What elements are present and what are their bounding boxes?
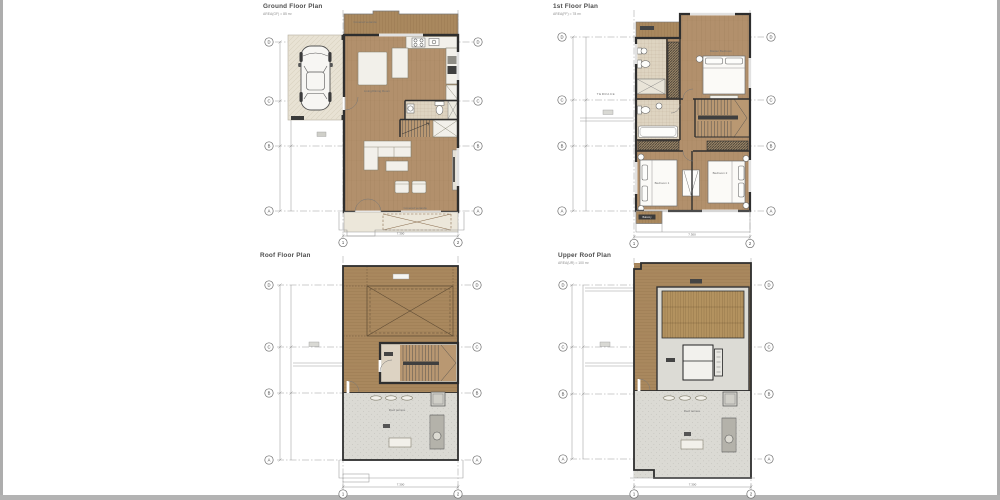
terrace-edge-lines bbox=[293, 363, 343, 366]
coffee-table bbox=[386, 161, 408, 171]
label-chip bbox=[393, 274, 409, 279]
level-chip bbox=[600, 342, 610, 347]
grid-bubble: D bbox=[473, 281, 481, 289]
grid-bubble: A bbox=[474, 207, 482, 215]
grid-bubble: B bbox=[559, 390, 567, 398]
svg-text:D: D bbox=[267, 283, 270, 288]
appliance bbox=[448, 56, 457, 64]
door-gap bbox=[638, 379, 641, 391]
svg-text:C: C bbox=[267, 99, 270, 104]
svg-text:Covered veranda: Covered veranda bbox=[403, 206, 426, 210]
wc bbox=[405, 101, 458, 120]
svg-text:D: D bbox=[767, 283, 770, 288]
grid-bubble: D bbox=[265, 38, 273, 46]
building: Roof terrace bbox=[339, 266, 463, 482]
building: Covered veranda bbox=[339, 11, 464, 236]
closet bbox=[638, 141, 679, 150]
stool bbox=[664, 396, 675, 400]
grid-bubble: A bbox=[558, 207, 566, 215]
svg-text:Bedroom 1: Bedroom 1 bbox=[655, 181, 670, 185]
desk-chair bbox=[683, 170, 700, 196]
grid-bubble: B bbox=[558, 142, 566, 150]
building: Master Bedroom bbox=[635, 13, 752, 232]
grid-bubble: D bbox=[558, 33, 566, 41]
washbasin-icon bbox=[656, 103, 662, 109]
dining-set bbox=[358, 52, 387, 85]
svg-text:Bedroom 2: Bedroom 2 bbox=[713, 171, 728, 175]
roof-floor-drawing: D C B A D C B A bbox=[255, 248, 500, 500]
svg-text:Covered veranda: Covered veranda bbox=[353, 20, 376, 24]
svg-text:C: C bbox=[561, 345, 564, 350]
svg-text:A: A bbox=[768, 457, 771, 462]
grid-bubble: A bbox=[473, 456, 481, 464]
svg-text:B: B bbox=[268, 144, 271, 149]
grid-bubble: C bbox=[765, 343, 773, 351]
stool bbox=[402, 396, 413, 400]
garage-label-chip bbox=[291, 116, 304, 120]
grid-bubble: C bbox=[265, 97, 273, 105]
svg-text:D: D bbox=[475, 283, 478, 288]
stool bbox=[371, 396, 382, 400]
svg-text:Balcony: Balcony bbox=[643, 216, 653, 219]
garage bbox=[288, 35, 345, 120]
understair-storage bbox=[433, 120, 458, 137]
grid-bubble: B bbox=[767, 142, 775, 150]
sun-lounger bbox=[722, 418, 736, 452]
kitchen-sink-icon bbox=[429, 39, 439, 46]
svg-text:Master Bedroom: Master Bedroom bbox=[710, 49, 733, 53]
label-chip bbox=[666, 358, 675, 362]
grid-bubble: C bbox=[559, 343, 567, 351]
stool bbox=[696, 396, 707, 400]
dimension-chain bbox=[571, 284, 585, 461]
grid-bubble: B bbox=[265, 142, 273, 150]
kitchen-island bbox=[392, 48, 408, 78]
stairs bbox=[400, 120, 458, 137]
upper-roof-drawing: D C B A D C B A bbox=[540, 248, 795, 500]
roof-terrace: Roof terrace bbox=[343, 392, 458, 460]
nightstand bbox=[743, 156, 749, 162]
grid-bubble: C bbox=[265, 343, 273, 351]
nightstand bbox=[696, 56, 702, 62]
svg-text:Roof terrace: Roof terrace bbox=[389, 408, 406, 412]
dimension-chain bbox=[279, 284, 293, 462]
label-chip bbox=[690, 279, 702, 284]
svg-text:D: D bbox=[769, 35, 772, 40]
svg-text:A: A bbox=[562, 457, 565, 462]
grid-bubble: D bbox=[765, 281, 773, 289]
master-bedroom: Master Bedroom bbox=[696, 49, 745, 99]
door-gap bbox=[347, 381, 350, 393]
pergola-slats bbox=[662, 291, 744, 338]
svg-text:A: A bbox=[477, 209, 480, 214]
dimension-bottom: 7.300 bbox=[633, 482, 753, 489]
appliance bbox=[448, 66, 457, 74]
roof-terrace: Roof terrace bbox=[634, 391, 751, 478]
planter bbox=[723, 392, 737, 406]
nightstand bbox=[743, 203, 749, 209]
svg-text:B: B bbox=[562, 392, 565, 397]
svg-text:7.300: 7.300 bbox=[397, 231, 405, 235]
stair-bulkhead bbox=[379, 343, 458, 383]
level-chip bbox=[317, 132, 326, 137]
svg-text:C: C bbox=[476, 99, 479, 104]
grid-bubble: D bbox=[559, 281, 567, 289]
bedroom-2: Bedroom 2 bbox=[708, 156, 749, 209]
dimension-bottom: 7.300 bbox=[342, 231, 460, 238]
svg-text:C: C bbox=[769, 98, 772, 103]
svg-text:B: B bbox=[477, 144, 480, 149]
svg-text:D: D bbox=[560, 35, 563, 40]
wood-floor bbox=[680, 14, 750, 40]
terrace-label: TERRACE bbox=[597, 92, 616, 96]
svg-text:D: D bbox=[476, 40, 479, 45]
grid-bubble: 1 bbox=[630, 490, 638, 498]
toilet-icon bbox=[638, 60, 651, 68]
grid-bubble: 2 bbox=[747, 490, 755, 498]
grid-bubble: C bbox=[474, 97, 482, 105]
corner-unit bbox=[446, 85, 458, 100]
svg-text:B: B bbox=[476, 391, 479, 396]
grid-bubble: D bbox=[474, 38, 482, 46]
level-chip bbox=[603, 110, 613, 115]
balcony: Balcony bbox=[636, 211, 662, 224]
bathroom-mid bbox=[637, 100, 679, 139]
svg-text:B: B bbox=[768, 392, 771, 397]
terrace-edge-lines bbox=[580, 118, 634, 121]
svg-text:C: C bbox=[560, 98, 563, 103]
svg-text:B: B bbox=[268, 391, 271, 396]
svg-text:A: A bbox=[268, 458, 271, 463]
building: Roof terrace bbox=[630, 263, 755, 478]
svg-text:D: D bbox=[267, 40, 270, 45]
grid-bubble: 2 bbox=[454, 238, 462, 246]
ground-floor-plan: Ground Floor Plan AREA(GF) = 85 m² D C B… bbox=[255, 0, 500, 248]
svg-text:C: C bbox=[267, 345, 270, 350]
room-label: Living/Dining Room bbox=[364, 89, 391, 93]
svg-text:B: B bbox=[561, 144, 564, 149]
dimension-chain bbox=[572, 36, 588, 213]
wardrobe bbox=[668, 42, 679, 98]
bed bbox=[703, 56, 745, 94]
svg-text:A: A bbox=[268, 209, 271, 214]
bed bbox=[708, 161, 745, 203]
first-floor-plan: 1st Floor Plan AREA(FF) = 78 m² TERRACE … bbox=[540, 0, 790, 248]
grid-bubble: D bbox=[265, 281, 273, 289]
roof-floor-plan: Roof Floor Plan D C B A D C B bbox=[255, 248, 500, 500]
svg-text:Roof terrace: Roof terrace bbox=[684, 409, 701, 413]
grid-bubble: 1 bbox=[339, 238, 347, 246]
stool bbox=[386, 396, 397, 400]
grid-bubble: 2 bbox=[746, 239, 754, 247]
svg-text:7.300: 7.300 bbox=[689, 482, 697, 486]
stool bbox=[680, 396, 691, 400]
grid-bubble: B bbox=[474, 142, 482, 150]
grid-bubble: 1 bbox=[339, 490, 347, 498]
grid-bubble: A bbox=[765, 455, 773, 463]
bathtub-icon bbox=[639, 126, 678, 138]
covered-veranda-deck bbox=[636, 22, 680, 38]
grid-bubble: B bbox=[265, 389, 273, 397]
label-chip bbox=[383, 424, 390, 428]
dimension-bottom: 7.300 bbox=[633, 232, 752, 239]
planter bbox=[431, 392, 445, 406]
stove-icon bbox=[412, 38, 425, 47]
terrace-table bbox=[389, 438, 411, 447]
stairs bbox=[695, 99, 750, 137]
bedroom-1: Bedroom 1 bbox=[638, 154, 677, 212]
shower bbox=[448, 101, 458, 119]
grid-bubble: A bbox=[265, 456, 273, 464]
bathroom-top bbox=[637, 39, 666, 94]
grid-bubble: C bbox=[558, 96, 566, 104]
floor-plan-sheet: Ground Floor Plan AREA(GF) = 85 m² D C B… bbox=[0, 0, 1000, 500]
washbasin-icon bbox=[638, 48, 648, 54]
label-chip bbox=[684, 432, 691, 436]
label-chip bbox=[384, 352, 393, 356]
svg-text:B: B bbox=[770, 144, 773, 149]
svg-text:A: A bbox=[476, 458, 479, 463]
grid-bubble: 2 bbox=[454, 490, 462, 498]
ground-floor-drawing: D C B A D C B A bbox=[255, 0, 500, 248]
grid-bubble: A bbox=[265, 207, 273, 215]
terrace-table bbox=[681, 440, 703, 449]
svg-text:C: C bbox=[475, 345, 478, 350]
svg-text:A: A bbox=[561, 209, 564, 214]
covered-veranda-top: Covered veranda bbox=[344, 11, 458, 35]
window-edge-left bbox=[0, 0, 3, 500]
grid-bubble: B bbox=[473, 389, 481, 397]
grid-bubble: D bbox=[767, 33, 775, 41]
shower bbox=[637, 79, 665, 94]
sun-lounger bbox=[430, 415, 444, 449]
closet bbox=[707, 141, 748, 150]
dimension-bottom: 7.300 bbox=[342, 482, 460, 489]
car-icon bbox=[298, 46, 333, 110]
first-floor-drawing: TERRACE D C B A D C B A bbox=[540, 0, 790, 248]
svg-text:D: D bbox=[561, 283, 564, 288]
svg-text:C: C bbox=[767, 345, 770, 350]
grid-bubble: A bbox=[767, 207, 775, 215]
upper-roof-plan: Upper Roof Plan AREA(UR) = 100 m² D C B bbox=[540, 248, 795, 500]
slab-outline bbox=[339, 460, 463, 478]
grid-bubble: C bbox=[473, 343, 481, 351]
washbasin-icon bbox=[407, 104, 414, 113]
grid-bubble: B bbox=[765, 390, 773, 398]
toilet-icon bbox=[638, 106, 651, 114]
svg-text:A: A bbox=[770, 209, 773, 214]
grid-bubble: 1 bbox=[630, 239, 638, 247]
svg-text:7.300: 7.300 bbox=[397, 482, 405, 486]
level-chip bbox=[309, 342, 319, 347]
inner-roof-panel bbox=[657, 279, 749, 391]
grid-bubble: C bbox=[767, 96, 775, 104]
svg-text:7.300: 7.300 bbox=[688, 232, 696, 236]
grid-bubble: A bbox=[559, 455, 567, 463]
window-edge-bottom bbox=[0, 495, 1000, 500]
nightstand bbox=[638, 154, 644, 160]
terrace-edge-lines bbox=[585, 288, 634, 366]
